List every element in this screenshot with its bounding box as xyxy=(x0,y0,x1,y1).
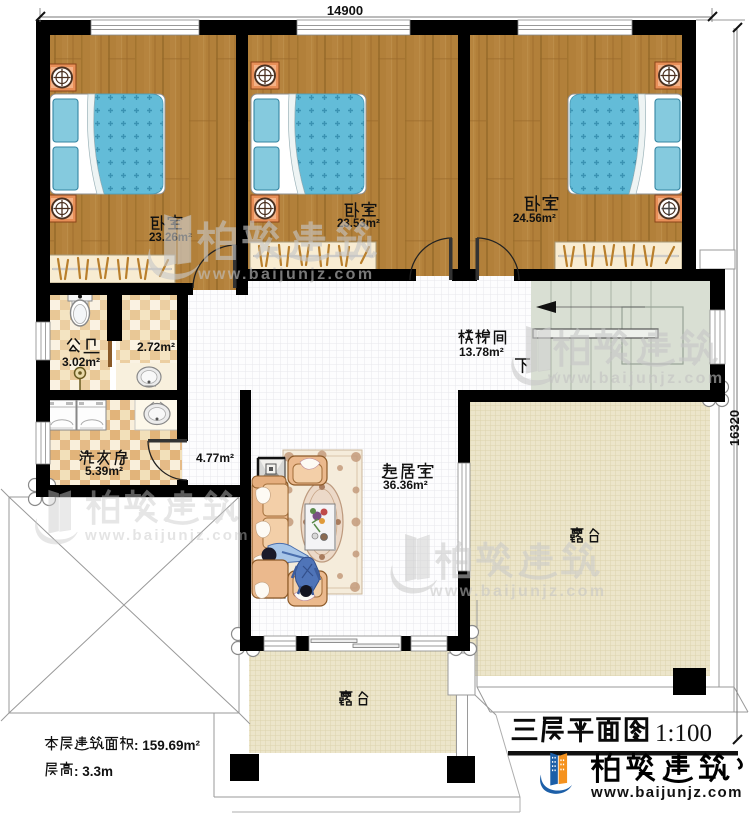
svg-text:16320: 16320 xyxy=(727,410,742,446)
svg-text:www.baijunjz.com: www.baijunjz.com xyxy=(547,370,725,387)
svg-text:www.baijunjz.com: www.baijunjz.com xyxy=(429,583,607,600)
svg-text:13.78m²: 13.78m² xyxy=(459,345,504,359)
svg-text:5.39m²: 5.39m² xyxy=(85,464,123,478)
svg-text:www.baijunjz.com: www.baijunjz.com xyxy=(590,784,743,801)
svg-text:www.baijunjz.com: www.baijunjz.com xyxy=(84,527,250,544)
svg-text:: 159.69m²: : 159.69m² xyxy=(134,738,201,753)
svg-text:24.56m²: 24.56m² xyxy=(513,213,556,225)
svg-text:14900: 14900 xyxy=(327,3,363,18)
svg-text:1:100: 1:100 xyxy=(655,720,712,747)
svg-text:www.baijunjz.com: www.baijunjz.com xyxy=(197,266,375,283)
svg-text:2.72m²: 2.72m² xyxy=(137,340,175,354)
svg-text:36.36m²: 36.36m² xyxy=(383,478,428,492)
svg-text:4.77m²: 4.77m² xyxy=(196,451,234,465)
svg-text:: 3.3m: : 3.3m xyxy=(74,764,113,779)
svg-text:3.02m²: 3.02m² xyxy=(62,355,100,369)
